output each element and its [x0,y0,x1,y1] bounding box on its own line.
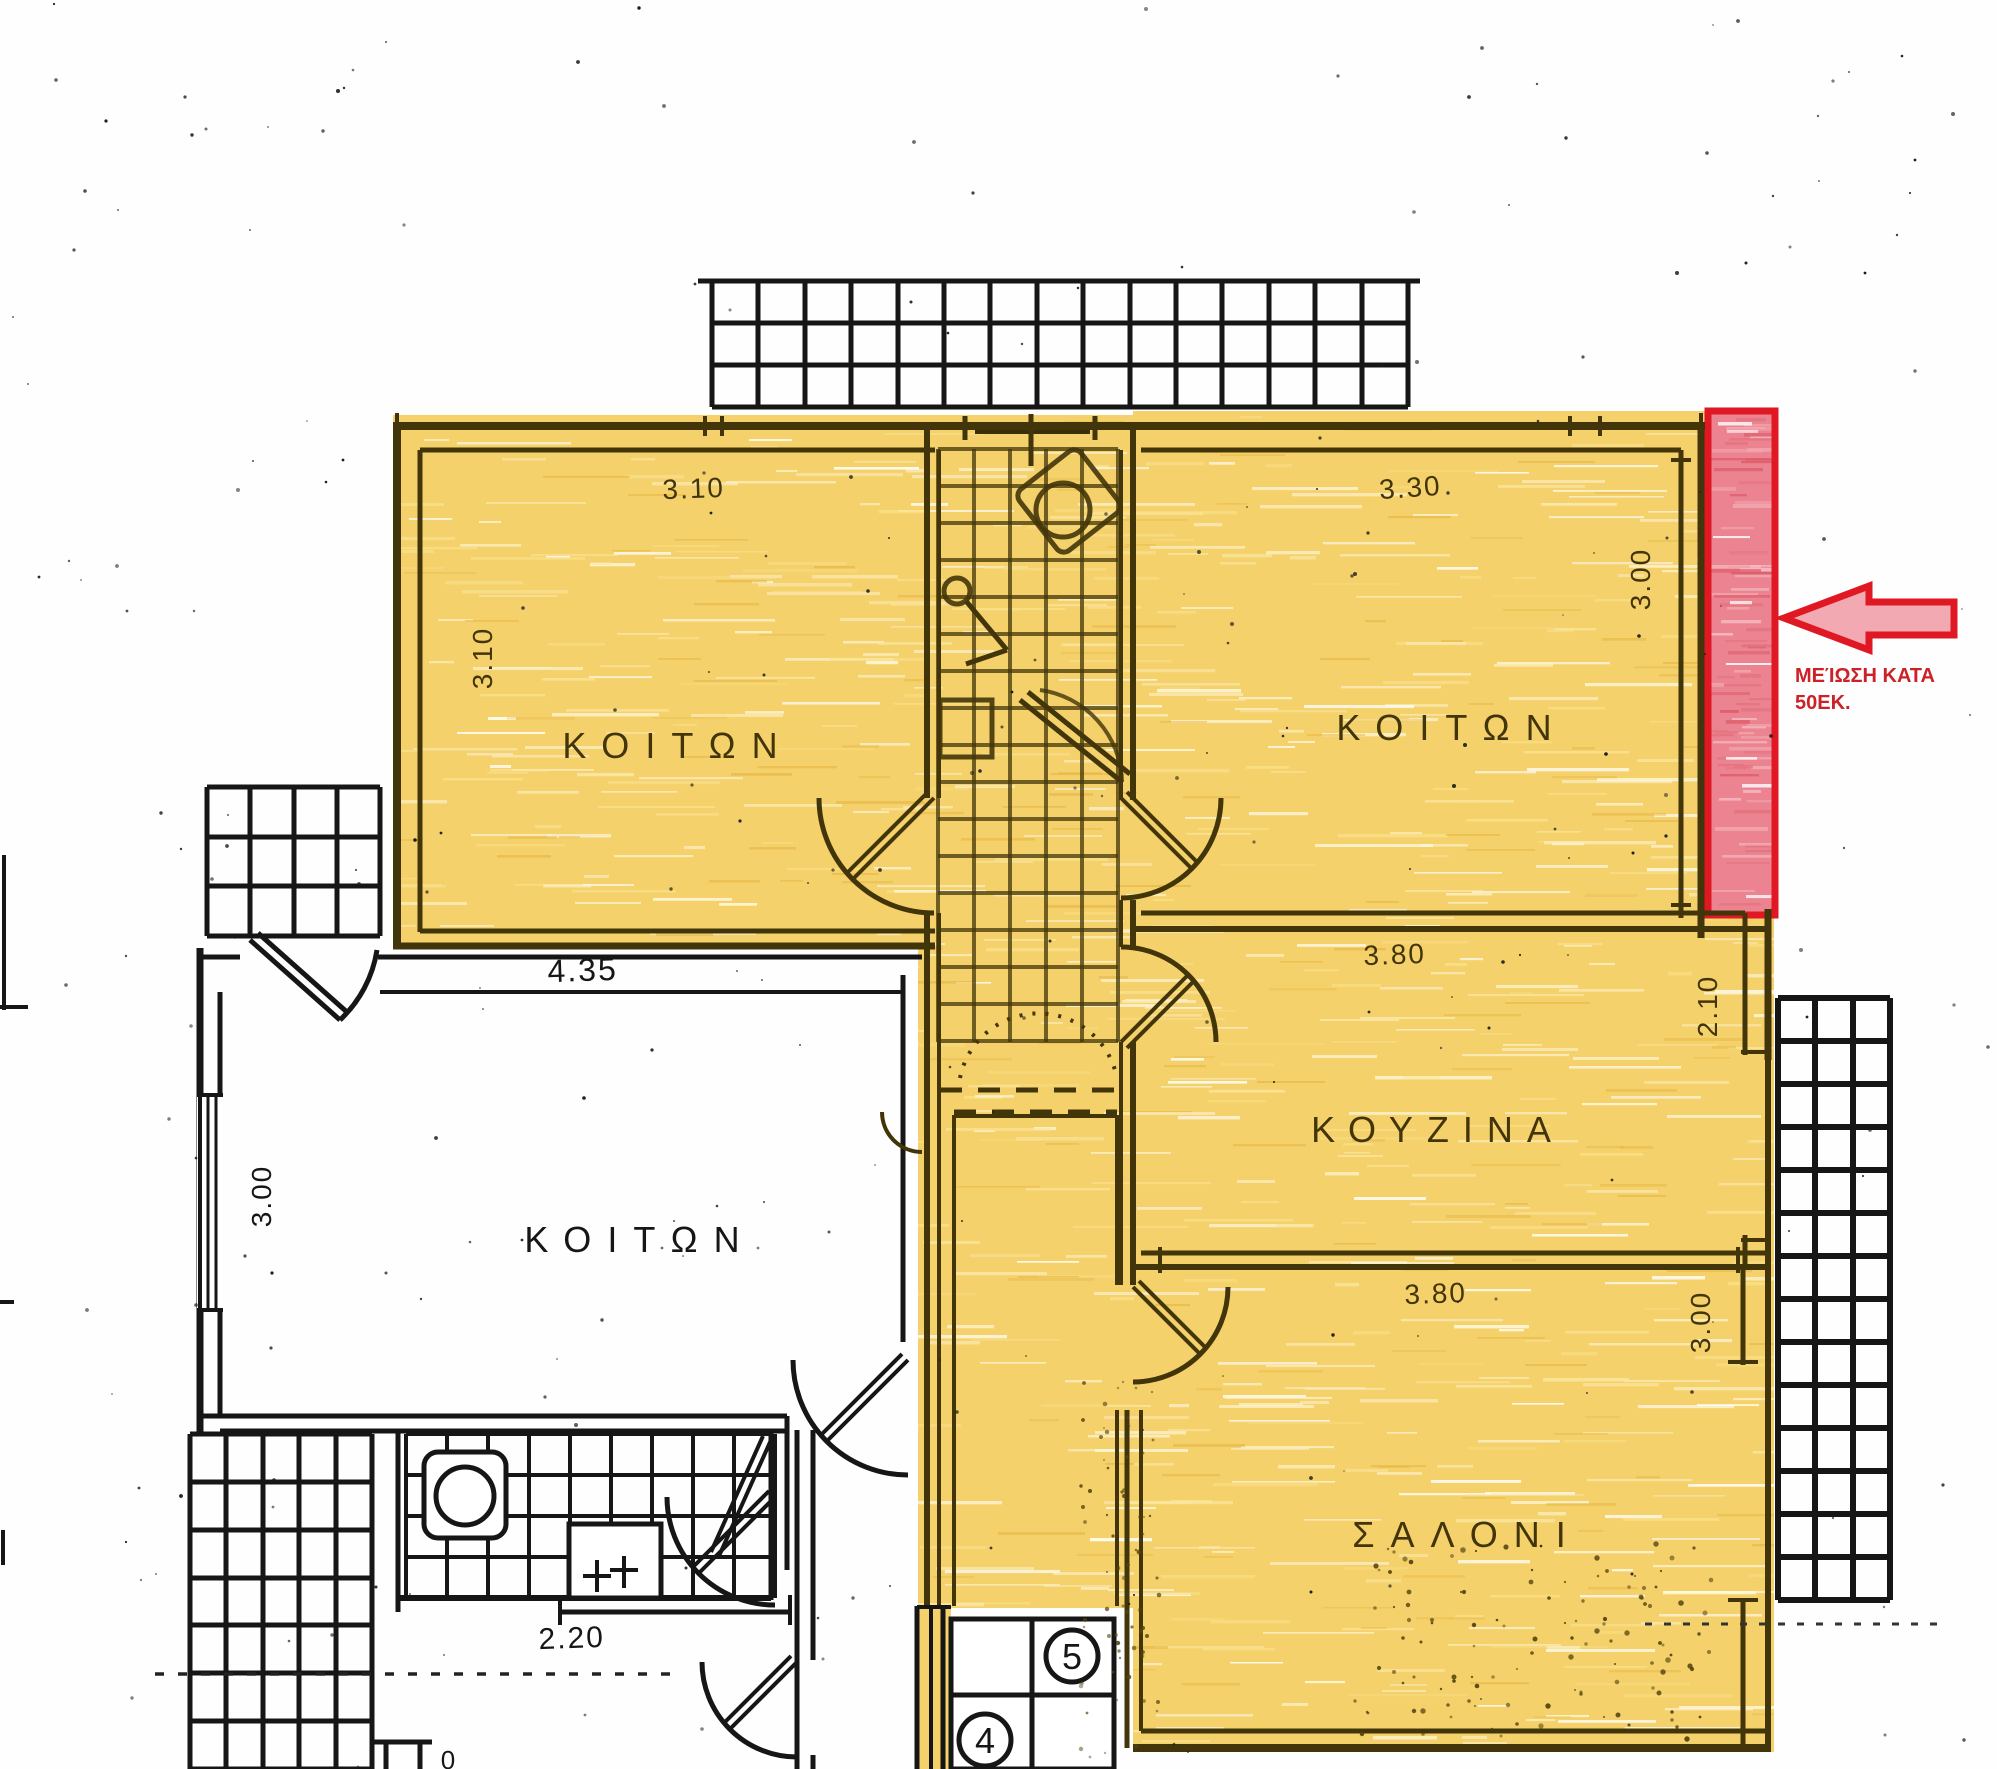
svg-text:ΚΟΥΖΙΝΑ: ΚΟΥΖΙΝΑ [1311,1109,1565,1150]
svg-text:3.00: 3.00 [246,1165,277,1228]
svg-text:ΣΑΛΟΝΙ: ΣΑΛΟΝΙ [1352,1514,1582,1555]
svg-text:2.20: 2.20 [538,1621,606,1656]
svg-text:3.00: 3.00 [1625,548,1656,611]
svg-text:5: 5 [1062,1636,1082,1677]
svg-text:ΜΕΊΩΣΗ ΚΑΤΑ: ΜΕΊΩΣΗ ΚΑΤΑ [1795,665,1935,687]
svg-text:3.80: 3.80 [1363,938,1427,971]
svg-text:4.35: 4.35 [547,951,618,989]
svg-text:3.30: 3.30 [1378,470,1443,505]
svg-text:0: 0 [441,1745,455,1769]
svg-text:50ΕΚ.: 50ΕΚ. [1795,692,1851,714]
svg-text:3.10: 3.10 [662,472,726,505]
svg-text:3.80: 3.80 [1404,1277,1468,1310]
svg-text:ΚΟΙΤΩΝ: ΚΟΙΤΩΝ [1336,707,1567,748]
svg-text:ΚΟΙΤΩΝ: ΚΟΙΤΩΝ [524,1219,755,1260]
svg-text:ΚΟΙΤΩΝ: ΚΟΙΤΩΝ [562,725,793,766]
svg-text:3.10: 3.10 [467,627,498,690]
svg-text:3.00: 3.00 [1685,1291,1716,1354]
svg-text:4: 4 [975,1720,995,1761]
svg-text:2.10: 2.10 [1692,975,1723,1038]
